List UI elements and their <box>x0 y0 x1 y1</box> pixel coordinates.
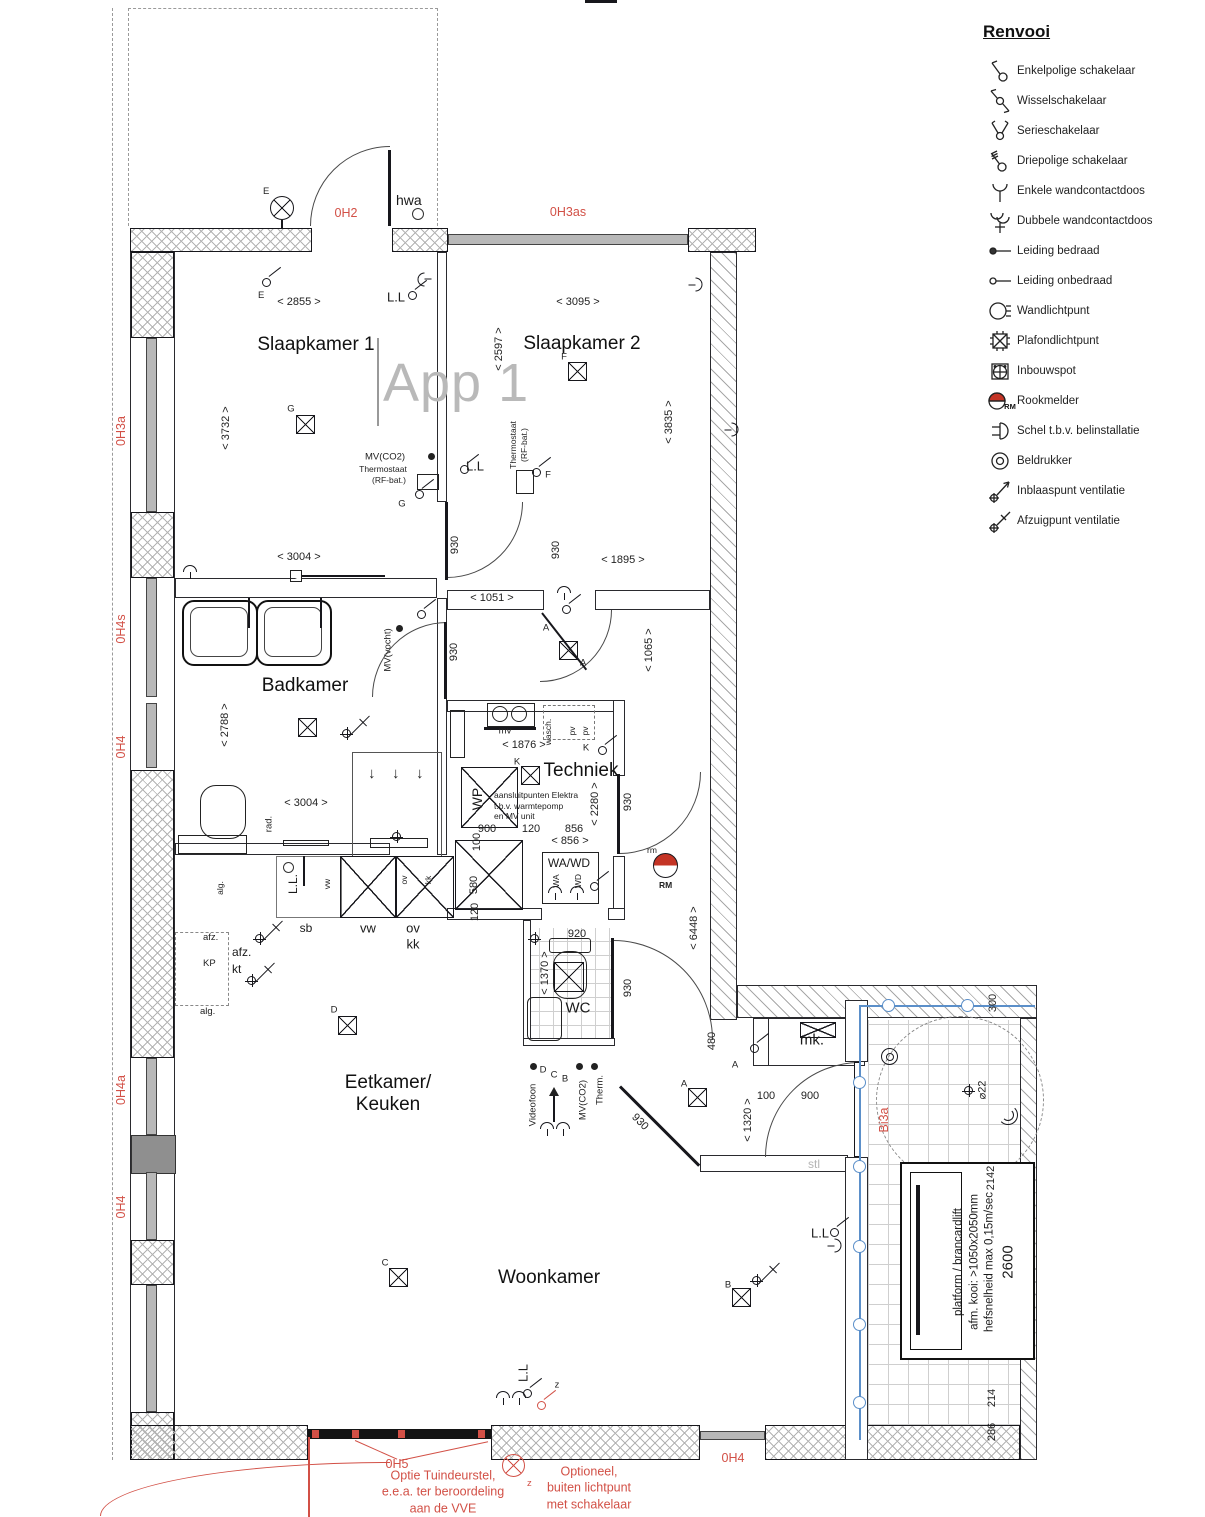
legend-item: Driepolige schakelaar <box>983 146 1198 176</box>
watermark-divider <box>377 338 379 426</box>
lift-platform-rail <box>916 1185 920 1335</box>
dim: < 3835 > <box>663 400 675 443</box>
afz-kt-label: kt <box>232 962 241 976</box>
room-label-wc: WC <box>566 1000 591 1017</box>
legend-item: Leiding bedraad <box>983 236 1198 266</box>
drain-symbol <box>964 1086 973 1095</box>
plumbing-node <box>882 999 895 1012</box>
kk-label: kk <box>407 937 420 952</box>
legend-item: Dubbele wandcontactdoos <box>983 206 1198 236</box>
dim: 480 <box>706 1032 718 1050</box>
letter: D <box>540 1065 547 1076</box>
afz-label: afz. <box>203 932 218 943</box>
switch-ll <box>408 291 417 300</box>
toilet-cistern <box>178 835 247 854</box>
wall <box>710 252 737 1020</box>
socket <box>540 1122 554 1129</box>
legend-item: Enkele wandcontactdoos <box>983 176 1198 206</box>
room-label-keuken: Keuken <box>356 1094 420 1116</box>
double-socket-icon <box>983 208 1017 234</box>
ceiling-light-symbol <box>389 1268 408 1287</box>
legend-item: Beldrukker <box>983 446 1198 476</box>
dim: 900 <box>801 1090 819 1102</box>
letter: A <box>681 1079 687 1090</box>
window <box>146 1285 157 1412</box>
wp-label: WP <box>469 788 485 811</box>
wall <box>491 1425 700 1460</box>
riser-arrowhead <box>549 1087 559 1096</box>
switch-k <box>598 746 607 755</box>
door-leaf <box>388 150 391 226</box>
kitchen-faucet <box>283 862 294 873</box>
legend-item: Inbouwspot <box>983 356 1198 386</box>
therm-label: Therm. <box>595 1075 606 1105</box>
room-label-woonkamer: Woonkamer <box>498 1267 600 1289</box>
floor-plan-app1: ⌀22 platform / brancardlift afm. kooi: >… <box>0 0 1205 1517</box>
dim: < 3095 > <box>556 296 599 308</box>
mvvocht-label: MV(vocht) <box>383 628 394 671</box>
sliding-door-arrowhead <box>291 571 301 581</box>
kitchen-divider <box>303 856 305 886</box>
red-label-0h4-bottom: 0H4 <box>722 1451 745 1465</box>
dim: 214 <box>986 1389 998 1407</box>
title-block-edge <box>585 0 617 3</box>
ov-label: ov <box>406 921 420 936</box>
dim: < 3732 > <box>220 406 232 449</box>
washbasin-inner <box>190 607 248 657</box>
wall <box>130 1425 308 1460</box>
wd-label: WD <box>573 874 583 888</box>
ll-label: L.L <box>811 1226 829 1241</box>
red-leader <box>400 1441 488 1461</box>
toilet-bowl <box>200 785 246 839</box>
switch-a <box>562 605 571 614</box>
thermostat-box <box>516 470 534 494</box>
ceiling-light-symbol <box>732 1288 751 1307</box>
dim: 300 <box>987 994 999 1012</box>
legend-item: Plafondlichtpunt <box>983 326 1198 356</box>
legend-item: Afzuigpunt ventilatie <box>983 506 1198 536</box>
door-leaf <box>444 622 447 699</box>
ceiling-light-symbol <box>688 1088 707 1107</box>
note-buiten-lichtpunt: Optioneel, buiten lichtpunt met schakela… <box>547 1464 632 1513</box>
wawd-label: WA/WD <box>548 856 590 870</box>
dim: 286 <box>986 1423 998 1441</box>
legend-item: Enkelpolige schakelaar <box>983 56 1198 86</box>
ov-label: ov <box>399 876 409 885</box>
legend-item: Wandlichtpunt <box>983 296 1198 326</box>
dim: 100 <box>471 833 483 851</box>
wall-light-symbol <box>270 196 294 220</box>
room-label-mk: mk. <box>800 1032 824 1049</box>
red-label-0h4s: 0H4s <box>114 614 128 643</box>
window <box>146 338 157 512</box>
watermark-fragment: stl <box>808 1157 820 1171</box>
front-door-arc <box>765 1062 860 1157</box>
red-hardware-mark <box>352 1430 359 1438</box>
videofoon-label: Videofoon <box>528 1084 539 1127</box>
dim: < 1895 > <box>601 554 644 566</box>
dim: 580 <box>468 876 480 894</box>
vw-label: vw <box>360 921 376 936</box>
switch <box>590 882 599 891</box>
wall <box>845 1157 868 1460</box>
window <box>700 1431 765 1440</box>
supply-vent-icon <box>983 478 1017 504</box>
apartment-watermark: App 1 <box>383 352 529 414</box>
letter: K <box>583 743 589 754</box>
ceiling-light-symbol <box>338 1016 357 1035</box>
letter: A <box>732 1060 738 1071</box>
doorbell-chime-symbol <box>998 1105 1018 1125</box>
wp-annotation: aansluitpunten Elektra t.b.v. warmtepomp… <box>494 790 578 822</box>
thermostat-label: Thermostaat <box>359 464 407 474</box>
dim: 930 <box>449 536 461 554</box>
dim: 930 <box>448 643 460 661</box>
ll-label: L.L <box>516 1364 531 1382</box>
door-arc <box>619 772 701 854</box>
smoke-detector-icon: RM <box>983 388 1017 414</box>
hand-basin <box>527 997 562 1041</box>
ceiling-light-symbol <box>559 641 578 660</box>
window <box>448 234 688 245</box>
letter: A <box>580 658 586 669</box>
dim: 120 <box>522 823 540 835</box>
wall <box>131 252 174 338</box>
sb-label: sb <box>300 921 313 935</box>
washbasin-inner <box>264 607 322 657</box>
letter: K <box>514 757 520 768</box>
wall-light-icon <box>983 298 1017 324</box>
socket <box>183 565 197 572</box>
thermostat-box <box>417 474 439 490</box>
window <box>146 703 157 768</box>
switch-e <box>262 278 271 287</box>
wired-conduit-dot <box>396 625 403 632</box>
letter: B <box>725 1280 731 1291</box>
dim: < 2280 > <box>589 782 601 825</box>
wall <box>765 1425 1020 1460</box>
red-hardware-mark <box>312 1430 319 1438</box>
single-socket-icon <box>983 178 1017 204</box>
window <box>146 578 157 697</box>
room-label-badkamer: Badkamer <box>262 675 349 697</box>
ceiling-light-symbol <box>568 362 587 381</box>
wa-label: WA <box>551 874 561 887</box>
alg-label: alg. <box>200 1006 215 1017</box>
grid-line <box>112 8 113 1460</box>
plumbing-line <box>859 1005 861 1440</box>
switch <box>417 610 426 619</box>
letter: F <box>561 352 567 363</box>
socket <box>732 423 739 437</box>
red-label-0h3a: 0H3a <box>114 416 128 446</box>
room-label-techniek: Techniek <box>544 760 619 782</box>
mv-fan <box>492 706 508 722</box>
ceiling-light-symbol <box>296 415 315 434</box>
legend-item: Schel t.b.v. belinstallatie <box>983 416 1198 446</box>
letter: F <box>545 470 551 481</box>
lift-dim-2600: 2600 <box>998 1157 1018 1367</box>
letter: G <box>398 499 405 510</box>
legend-item: RM Rookmelder <box>983 386 1198 416</box>
wall <box>392 228 448 252</box>
socket <box>556 1122 570 1129</box>
faucet <box>320 598 322 628</box>
dim: < 6448 > <box>688 906 700 949</box>
legend-item: Serieschakelaar <box>983 116 1198 146</box>
alg-label: alg. <box>215 881 225 895</box>
ceiling-light-icon <box>983 328 1017 354</box>
doorbell-chime-icon <box>983 418 1017 444</box>
wall-solid <box>131 1135 176 1174</box>
legend-item: Leiding onbedraad <box>983 266 1198 296</box>
socket <box>512 1391 526 1398</box>
wall <box>131 770 174 1058</box>
letter: G <box>287 404 294 415</box>
mv-fan <box>511 706 527 722</box>
letter: D <box>331 1005 338 1016</box>
kitchen-unit-vw <box>340 856 396 918</box>
extract-vent-symbol <box>250 962 274 986</box>
socket <box>557 586 571 593</box>
door-leaf <box>617 774 620 854</box>
dim: < 2788 > <box>219 703 231 746</box>
plumbing-node <box>853 1240 866 1253</box>
socket <box>418 273 425 287</box>
red-label-0h2: 0H2 <box>335 206 358 220</box>
red-label-0h3as: 0H3as <box>550 205 586 219</box>
wired-conduit-dot <box>428 453 435 460</box>
dim: 930 <box>622 793 634 811</box>
dim: < 3004 > <box>284 797 327 809</box>
series-switch-icon <box>983 118 1017 144</box>
dim: < 1320 > <box>742 1098 754 1141</box>
switch-z-optional <box>537 1401 546 1410</box>
hwa-label: hwa <box>396 192 422 208</box>
door-leaf <box>611 938 614 1038</box>
ll-label: L.L <box>387 290 405 305</box>
thermostat-label: (RF-bat.) <box>372 475 406 485</box>
room-label-slaapkamer1: Slaapkamer 1 <box>257 334 374 356</box>
red-label-0h4: 0H4 <box>114 1196 128 1219</box>
wall <box>130 228 312 252</box>
grid-line <box>437 8 438 226</box>
bell-push-symbol <box>881 1048 898 1065</box>
wall <box>608 908 625 920</box>
pv-label: pv <box>567 727 577 736</box>
dim: < 1051 > <box>470 592 513 604</box>
dim: 930 <box>550 541 562 559</box>
kp-label: KP <box>203 958 216 969</box>
wasch-label: wasch. <box>543 719 553 745</box>
wall <box>845 1000 868 1062</box>
ll-label: L.L <box>466 459 484 474</box>
drain-diameter-label: ⌀22 <box>976 1081 989 1100</box>
switch-ll <box>830 1228 839 1237</box>
room-label-slaapkamer2: Slaapkamer 2 <box>523 333 640 355</box>
wall-light-stem <box>281 220 283 229</box>
red-label-0h4: 0H4 <box>114 736 128 759</box>
socket <box>696 278 703 292</box>
radiator <box>283 840 329 846</box>
sliding-door-arrow <box>300 575 385 577</box>
red-label-bi3a: Bi3a <box>877 1107 891 1132</box>
wall <box>131 512 174 578</box>
wall <box>688 228 756 252</box>
letter: E <box>258 290 264 301</box>
dim: < 2597 > <box>493 327 505 370</box>
red-leader <box>355 1440 398 1460</box>
wired-conduit-icon <box>983 238 1017 264</box>
shower-slope-arrow: ↓ <box>416 765 424 782</box>
shower-mixer <box>392 832 401 841</box>
optional-exterior-light-symbol <box>502 1454 525 1477</box>
letter: B <box>562 1074 568 1085</box>
kk-label: kk <box>423 876 433 885</box>
manifold <box>450 710 465 758</box>
note-tuindeurstel: Optie Tuindeurstel, e.e.a. ter beroordel… <box>382 1468 504 1517</box>
door-leaf <box>445 502 448 580</box>
legend-item: Wisselschakelaar <box>983 86 1198 116</box>
plumbing-node <box>853 1160 866 1173</box>
vw-label: vw <box>322 879 332 889</box>
wall <box>595 590 710 610</box>
ll-label: L.L. <box>286 874 300 894</box>
extract-vent-symbol <box>258 920 282 944</box>
dim: 2142 <box>985 1166 997 1190</box>
kitchen-kp-unit <box>175 932 229 1006</box>
extract-vent-symbol <box>345 715 369 739</box>
afz-kt-label: afz. <box>232 945 251 959</box>
two-way-switch-icon <box>983 88 1017 114</box>
wired-conduit-dot <box>576 1063 583 1070</box>
letter: A <box>543 623 549 634</box>
unwired-conduit-icon <box>983 268 1017 294</box>
smoke-detector-tag: rm <box>647 845 657 855</box>
socket <box>835 1239 842 1253</box>
dim: 920 <box>568 928 586 940</box>
recessed-spot-icon <box>983 358 1017 384</box>
dim: < 2855 > <box>277 296 320 308</box>
dim: < 1876 > <box>502 739 545 751</box>
wired-conduit-dot <box>530 1063 537 1070</box>
red-option-arc <box>100 1462 390 1516</box>
extract-vent-symbol <box>755 1262 779 1286</box>
legend-item: Inblaaspunt ventilatie <box>983 476 1198 506</box>
grid-line <box>128 8 129 226</box>
smoke-detector-label: RM <box>659 880 672 890</box>
wall <box>175 578 437 598</box>
red-hardware-mark <box>398 1430 405 1438</box>
wc-light-box <box>554 962 584 992</box>
three-pole-switch-icon <box>983 148 1017 174</box>
shower-slope-arrow: ↓ <box>392 765 400 782</box>
extract-vent-symbol <box>530 934 539 943</box>
riser-arrow <box>553 1092 555 1122</box>
shower-slope-arrow: ↓ <box>368 765 376 782</box>
wired-conduit-dot <box>591 1063 598 1070</box>
ceiling-light-symbol <box>298 718 317 737</box>
window <box>146 1058 157 1135</box>
plumbing-node <box>961 999 974 1012</box>
socket <box>496 1391 510 1398</box>
thermostat-label: (RF-bat.) <box>519 428 529 462</box>
pv-label: pv <box>580 727 590 736</box>
red-label-0h4a: 0H4a <box>114 1075 128 1105</box>
rad-label: rad. <box>264 816 275 832</box>
switch-a <box>750 1044 759 1053</box>
ceiling-light-symbol <box>521 766 540 785</box>
faucet <box>248 598 250 628</box>
letter: E <box>263 186 269 197</box>
letter: z <box>555 1380 560 1391</box>
wall <box>700 1155 848 1172</box>
mvco2-label: MV(CO2) <box>365 452 405 463</box>
dim: 856 <box>565 823 583 835</box>
dim: 930 <box>622 979 634 997</box>
wall <box>447 700 625 712</box>
grid-line <box>128 8 438 9</box>
bell-push-icon <box>983 448 1017 474</box>
room-label-eetkamer: Eetkamer/ <box>345 1072 432 1094</box>
mv-unit-box <box>455 840 523 910</box>
single-pole-switch-icon <box>983 58 1017 84</box>
kitchen-unit-ov-kk <box>396 856 454 918</box>
legend-title: Renvooi <box>983 22 1198 42</box>
dim: < 3004 > <box>277 551 320 563</box>
dim: 120 <box>469 903 481 921</box>
plumbing-node <box>853 1318 866 1331</box>
window <box>146 1172 157 1240</box>
letter: C <box>551 1070 558 1081</box>
dim: 100 <box>757 1090 775 1102</box>
letter: C <box>382 1258 389 1269</box>
plumbing-node <box>853 1076 866 1089</box>
letter-z-red: z <box>527 1478 532 1489</box>
dim: < 1065 > <box>643 628 655 671</box>
legend-renvooi: Renvooi Enkelpolige schakelaar Wisselsch… <box>983 22 1198 536</box>
smoke-detector-symbol <box>653 853 678 878</box>
switch-g <box>415 490 424 499</box>
dim: < 856 > <box>551 835 588 847</box>
red-hardware-mark <box>478 1430 485 1438</box>
extract-vent-icon <box>983 508 1017 534</box>
wall <box>131 1240 174 1285</box>
thermostat-label: Thermostaat <box>508 421 518 469</box>
mvco2-label: MV(CO2) <box>578 1080 589 1120</box>
plumbing-node <box>853 1396 866 1409</box>
hwa-pipe <box>412 208 424 220</box>
mv-label: mv <box>499 726 512 737</box>
dim: < 1370 > <box>539 951 551 994</box>
